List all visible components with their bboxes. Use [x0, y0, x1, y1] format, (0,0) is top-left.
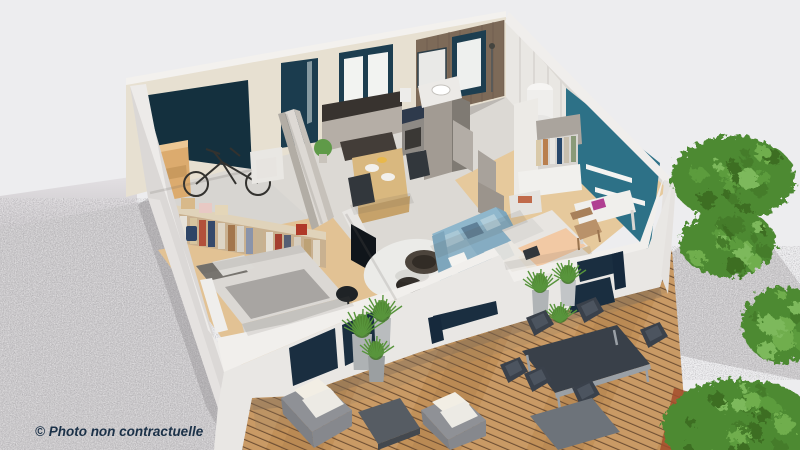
svg-text:© Photo non contractuelle: © Photo non contractuelle [35, 424, 204, 439]
